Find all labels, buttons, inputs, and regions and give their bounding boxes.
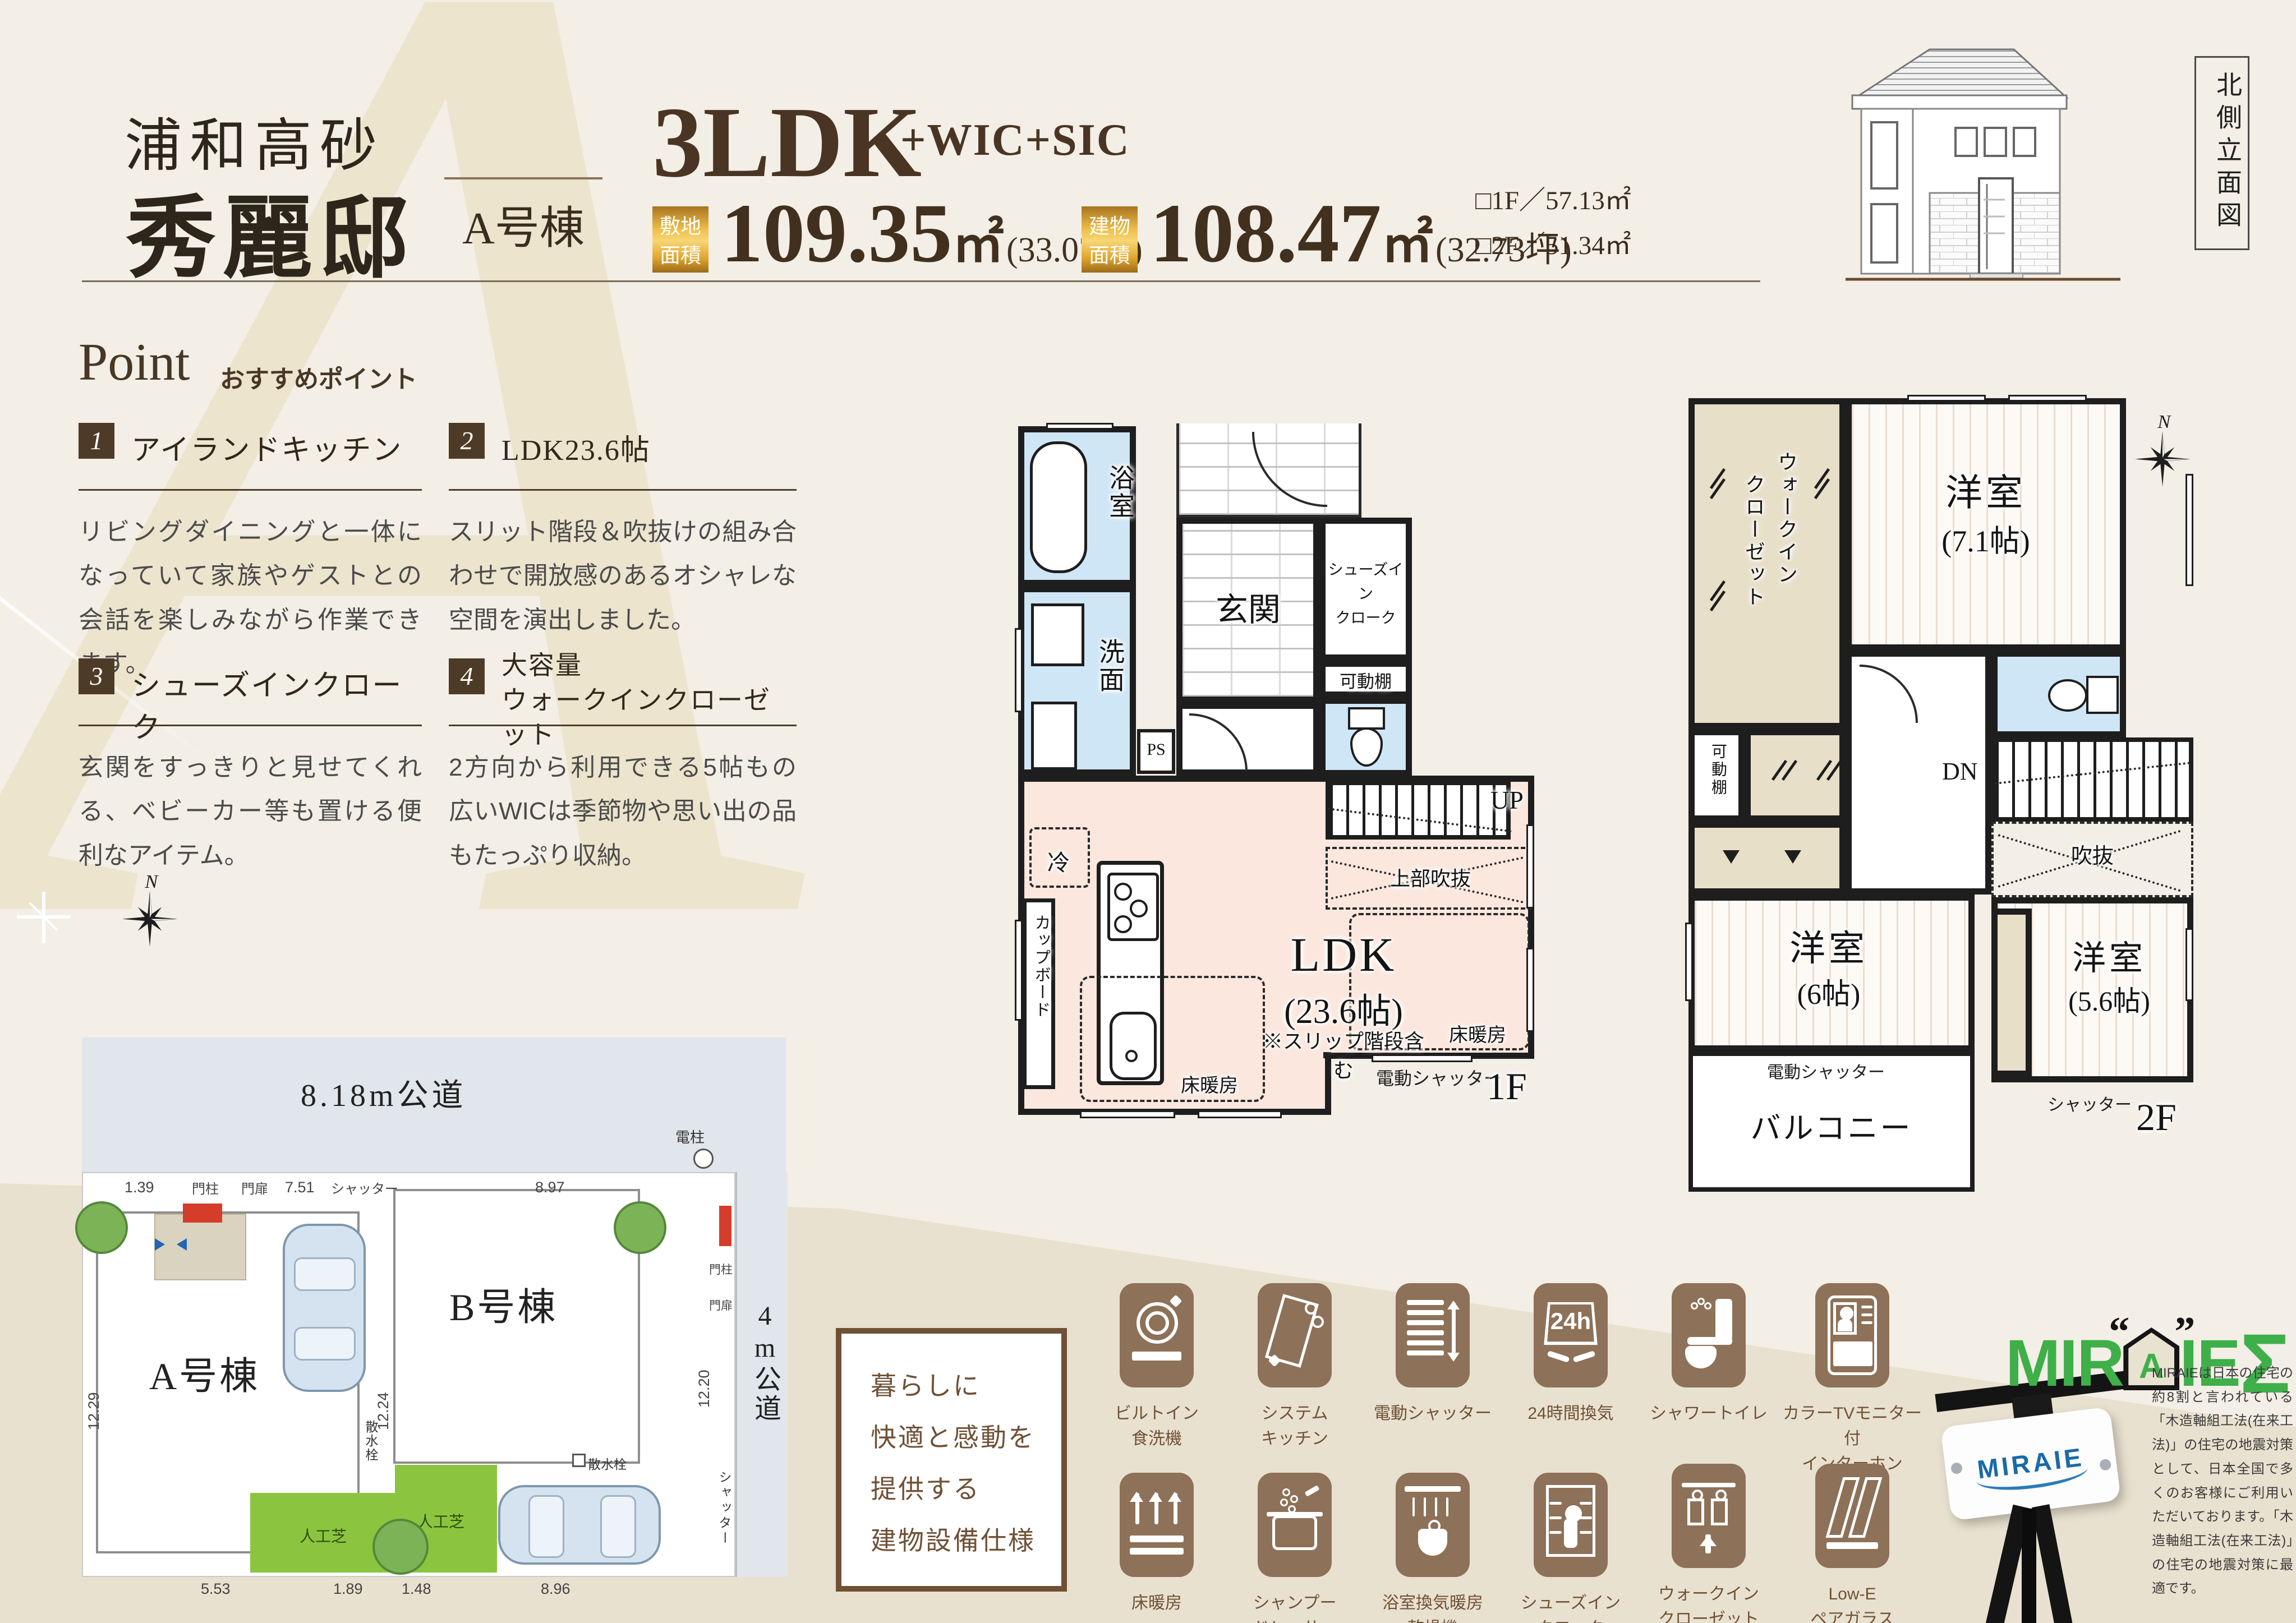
point-rule [79,489,422,491]
point-title: 大容量 ウォークインクローゼット [501,648,797,753]
bathtub [1030,441,1087,573]
electric-shutter-2f-label: 電動シャッター [1767,1058,1885,1083]
hall-door-arc [1189,713,1248,772]
car-glass [600,1495,636,1558]
point-number: 1 [79,423,114,459]
bedroom-6-label: 洋室 [1750,920,1907,971]
land-value: 109.35 [721,187,953,280]
wic-label-line2: クローゼット [1739,474,1768,608]
shutter-right-label: シャッター [715,1470,734,1546]
svg-text:N: N [144,872,159,892]
point-title: シューズインクローク [131,662,422,746]
low-e-glass-label: Low-E ペアガラス [1779,1581,1925,1623]
toilet-bowl [1350,727,1383,767]
dim-189: 1.89 [333,1580,363,1598]
window [1015,920,1023,1021]
dim-148: 1.48 [402,1580,431,1598]
folding-door-mark [1784,850,1801,872]
dim-139: 1.39 [125,1179,154,1196]
walk-in-closet-icon [1672,1464,1746,1568]
bedroom-56-size: (5.6帖) [2036,979,2182,1019]
hall2-door-arc [1860,665,1918,723]
wic-label-line1: ウォークイン [1772,451,1801,586]
cupboard-label: カップボード [1029,914,1053,1018]
dishwasher-icon [1120,1283,1194,1387]
shower-toilet-icon [1672,1283,1746,1387]
site-plan: 8.18m公道 4m公道 A号棟 B号棟 人工芝 人工芝 電柱 1.39 門柱 … [82,1038,786,1605]
window [1685,923,1693,1001]
window [1907,395,1986,402]
miraie-logo-mir: MIR [2005,1326,2123,1400]
svg-text:N: N [2157,412,2171,432]
window [1372,1054,1473,1062]
floor-heating-label: 床暖房 [1084,1590,1230,1616]
tap-a-label: 散水栓 [361,1420,380,1462]
shoes-in-closet-label: シューズイン クローク [1322,558,1409,631]
window [1526,948,1534,1032]
bedroom-6-size: (6帖) [1750,970,1907,1012]
miraie-description: MIRAIEは日本の住宅の約8割と言われている「木造軸組工法(在来工法)」の住宅… [2152,1362,2293,1601]
floor-heating-left-label: 床暖房 [1181,1070,1238,1098]
electric-shutter-icon [1396,1283,1470,1387]
window [2008,395,2087,402]
shoes-closet-icon [1534,1473,1608,1577]
window [1526,824,1534,909]
fridge-label: 冷 [1047,845,1070,877]
system-kitchen-icon [1258,1283,1332,1387]
tap-b-label: 散水栓 [588,1454,627,1473]
entrance-label: 玄関 [1198,583,1299,630]
point-number: 4 [449,658,485,694]
header-rule [82,280,1760,282]
damper-leg [2022,1509,2036,1623]
car-glass [294,1327,356,1361]
floor2-area: □2F／51.34㎡ [1475,223,1631,262]
tree [614,1201,666,1254]
floor-heating-icon [1120,1473,1194,1577]
dim-751: 7.51 [285,1179,315,1196]
closet-56 [1991,909,2032,1077]
floorplan-2f: ウォークイン クローゼット 可動棚 洋室 (7.1帖) DN 吹抜 洋室 (6帖… [1683,390,2193,1203]
dishwasher-label: ビルトイン 食洗機 [1084,1401,1230,1451]
points-title: Point [79,332,190,393]
damper-leg [2032,1504,2086,1623]
plan-suffix: +WIC+SIC [900,115,1130,166]
point-body: 玄関をすっきりと見せてくれる、ベビーカー等も置ける便利なアイテム。 [79,746,422,878]
elevation-label-box: 北側立面図 [2194,56,2249,250]
gate-b [719,1206,731,1246]
car-a [283,1224,366,1392]
house-b-label: B号棟 [449,1276,558,1331]
vanity [1031,702,1077,770]
point-body: リビングダイニングと一体になっていて家族やゲストとの会話を楽しみながら作業できま… [79,510,422,686]
bathroom-label: 浴室 [1101,464,1138,520]
shutter-2f-label: シャッター [2047,1091,2132,1115]
shampoo-dresser-label: シャンプー ドレッサー [1222,1590,1368,1623]
electric-shutter-label: 電動シャッター [1360,1401,1506,1426]
point-rule [449,489,797,491]
car-b [498,1485,661,1565]
tree [372,1519,429,1575]
estate-name: 秀麗邸 [126,165,416,296]
shampoo-dresser-icon [1258,1473,1332,1577]
building-area-badge: 建物 面積 [1082,206,1138,273]
stove-burner [1130,900,1148,917]
flyer-page: { "h":{ "loc":"浦和高砂","name":"秀麗邸","unit"… [0,0,2296,1623]
electric-shutter-1f-label: 電動シャッター [1376,1064,1502,1090]
floor1-label: 1F [1487,1064,1527,1109]
meter-mark [155,1238,171,1251]
bedroom-71-label: 洋室 [1902,463,2070,517]
gate-door-right-label: 門扉 [709,1297,733,1313]
floor2-label: 2F [2136,1095,2177,1140]
points-subtitle: おすすめポイント [220,359,417,395]
car-glass [294,1257,356,1291]
vent-24h-label: 24時間換気 [1498,1401,1644,1426]
hall-1f [1176,703,1319,776]
tap-b-mark [572,1454,586,1467]
utility-pole-label: 電柱 [675,1126,705,1147]
road-top-label: 8.18m公道 [301,1070,467,1115]
tv-interphone-icon [1815,1283,1889,1387]
washer [1031,603,1084,666]
floorplan-1f: 浴室 洗面 PS 玄関 シューズイン クローク 可動棚 冷 カップボード UP [1013,415,1540,1119]
quote-open: “ [2109,1308,2129,1356]
unit-label: A号棟 [444,192,602,257]
entry-door-arc [1252,432,1327,507]
dim-553: 5.53 [201,1580,231,1598]
elevation-label: 北側立面図 [2208,71,2246,234]
point-number: 2 [449,423,485,459]
walk-in-closet-label: ウォークイン クローゼット [1636,1581,1782,1623]
land-area-badge: 敷地 面積 [652,206,708,273]
building-unit: ㎡ [1382,215,1433,273]
house-a-label: A号棟 [149,1345,260,1400]
stove-burner [1114,915,1132,933]
point-rule [79,725,422,726]
folding-door-mark [1723,850,1740,872]
wic-passage [1745,729,1846,822]
unit-rule [444,177,602,179]
washroom-label: 洗面 [1091,638,1128,694]
vent-24h-icon: 24h [1534,1283,1608,1387]
building-value: 108.47 [1150,187,1382,280]
bath-dryer-icon [1396,1473,1470,1577]
point-number: 3 [79,658,114,694]
toilet-bowl [2048,679,2087,712]
floor1-area: □1F／57.13㎡ [1475,178,1631,217]
tree [75,1201,128,1254]
gate-a [183,1204,222,1223]
point-body: スリット階段＆吹抜けの組み合わせで開放感のあるオシャレな空間を演出しました。 [449,510,797,642]
ldk-label: LDK [1259,926,1428,983]
toilet-tank [2086,676,2119,714]
meter-mark [171,1238,187,1251]
gate-door-label: 門扉 [241,1178,268,1197]
bedroom-56-label: 洋室 [2036,931,2182,980]
low-e-glass-icon [1815,1464,1889,1568]
movable-shelf-2f-label: 可動棚 [1706,743,1729,797]
bath-dryer-label: 浴室換気暖房 乾燥機 [1360,1590,1506,1623]
quote-close: ” [2174,1308,2195,1356]
point-rule [449,725,797,726]
gate-post-label: 門柱 [192,1178,219,1197]
window [1046,423,1114,430]
gate-post-right-label: 門柱 [709,1261,733,1278]
turf-b-label: 人工芝 [417,1510,464,1532]
window [2185,928,2193,1001]
dim-897: 8.97 [535,1179,565,1196]
road-right-label: 4m公道 [745,1301,784,1423]
stairs-down-label: DN [1942,757,1978,786]
dim-896: 8.96 [541,1580,570,1598]
bedroom-71-size: (7.1帖) [1902,516,2070,560]
point-title: LDK23.6帖 [501,426,651,468]
closet-6tatami [1688,822,1846,895]
shutter-top-label: シャッター [331,1178,398,1197]
pipe-space-label: PS [1142,740,1171,759]
land-area-value: 109.35㎡ (33.07坪) [721,185,1143,282]
void-above-label: 上部吹抜 [1380,863,1481,892]
balcony-label: バルコニー [1750,1103,1913,1147]
plan-type: 3LDK [652,84,922,200]
damper-plate: MIRAIE [1940,1407,2121,1521]
shoes-closet-label: シューズイン クローク [1498,1590,1644,1623]
car-glass [528,1495,564,1558]
dim-1229: 12.29 [85,1392,103,1430]
toilet-1f [1319,698,1412,776]
turf-a-label: 人工芝 [300,1524,347,1547]
toilet-2f [1991,651,2126,737]
equipment-intro-text: 暮らしに 快適と感動を 提供する 建物設備仕様 [871,1361,1036,1567]
window [1080,1110,1175,1118]
compass-2f: N [2132,412,2193,496]
window [1198,1110,1282,1118]
window [1015,628,1023,712]
stove-burner [1114,883,1132,901]
vent-24h-text: 24h [1534,1308,1608,1335]
toilet-tank [1348,707,1385,730]
point-body: 2方向から利用できる5帖もの広いWICは季節物や思い出の品もたっぷり収納。 [449,746,797,878]
porch [1176,423,1361,518]
system-kitchen-label: システム キッチン [1222,1401,1368,1451]
movable-shelf-1f-label: 可動棚 [1322,667,1409,693]
dim-1220: 12.20 [696,1370,713,1408]
utility-pole [693,1149,714,1169]
void-2f-label: 吹抜 [2053,838,2132,869]
land-unit: ㎡ [953,215,1004,273]
point-title: アイランドキッチン [131,426,402,468]
equipment-intro-box: 暮らしに 快適と感動を 提供する 建物設備仕様 [836,1328,1067,1592]
floor-heating-right-label: 床暖房 [1449,1020,1506,1047]
elevation-drawing [1846,37,2120,289]
compass-site: N [119,872,181,956]
shower-toilet-label: シャワートイレ [1636,1401,1782,1426]
stairs-up [1326,781,1511,840]
stairs-up-label: UP [1490,785,1524,815]
